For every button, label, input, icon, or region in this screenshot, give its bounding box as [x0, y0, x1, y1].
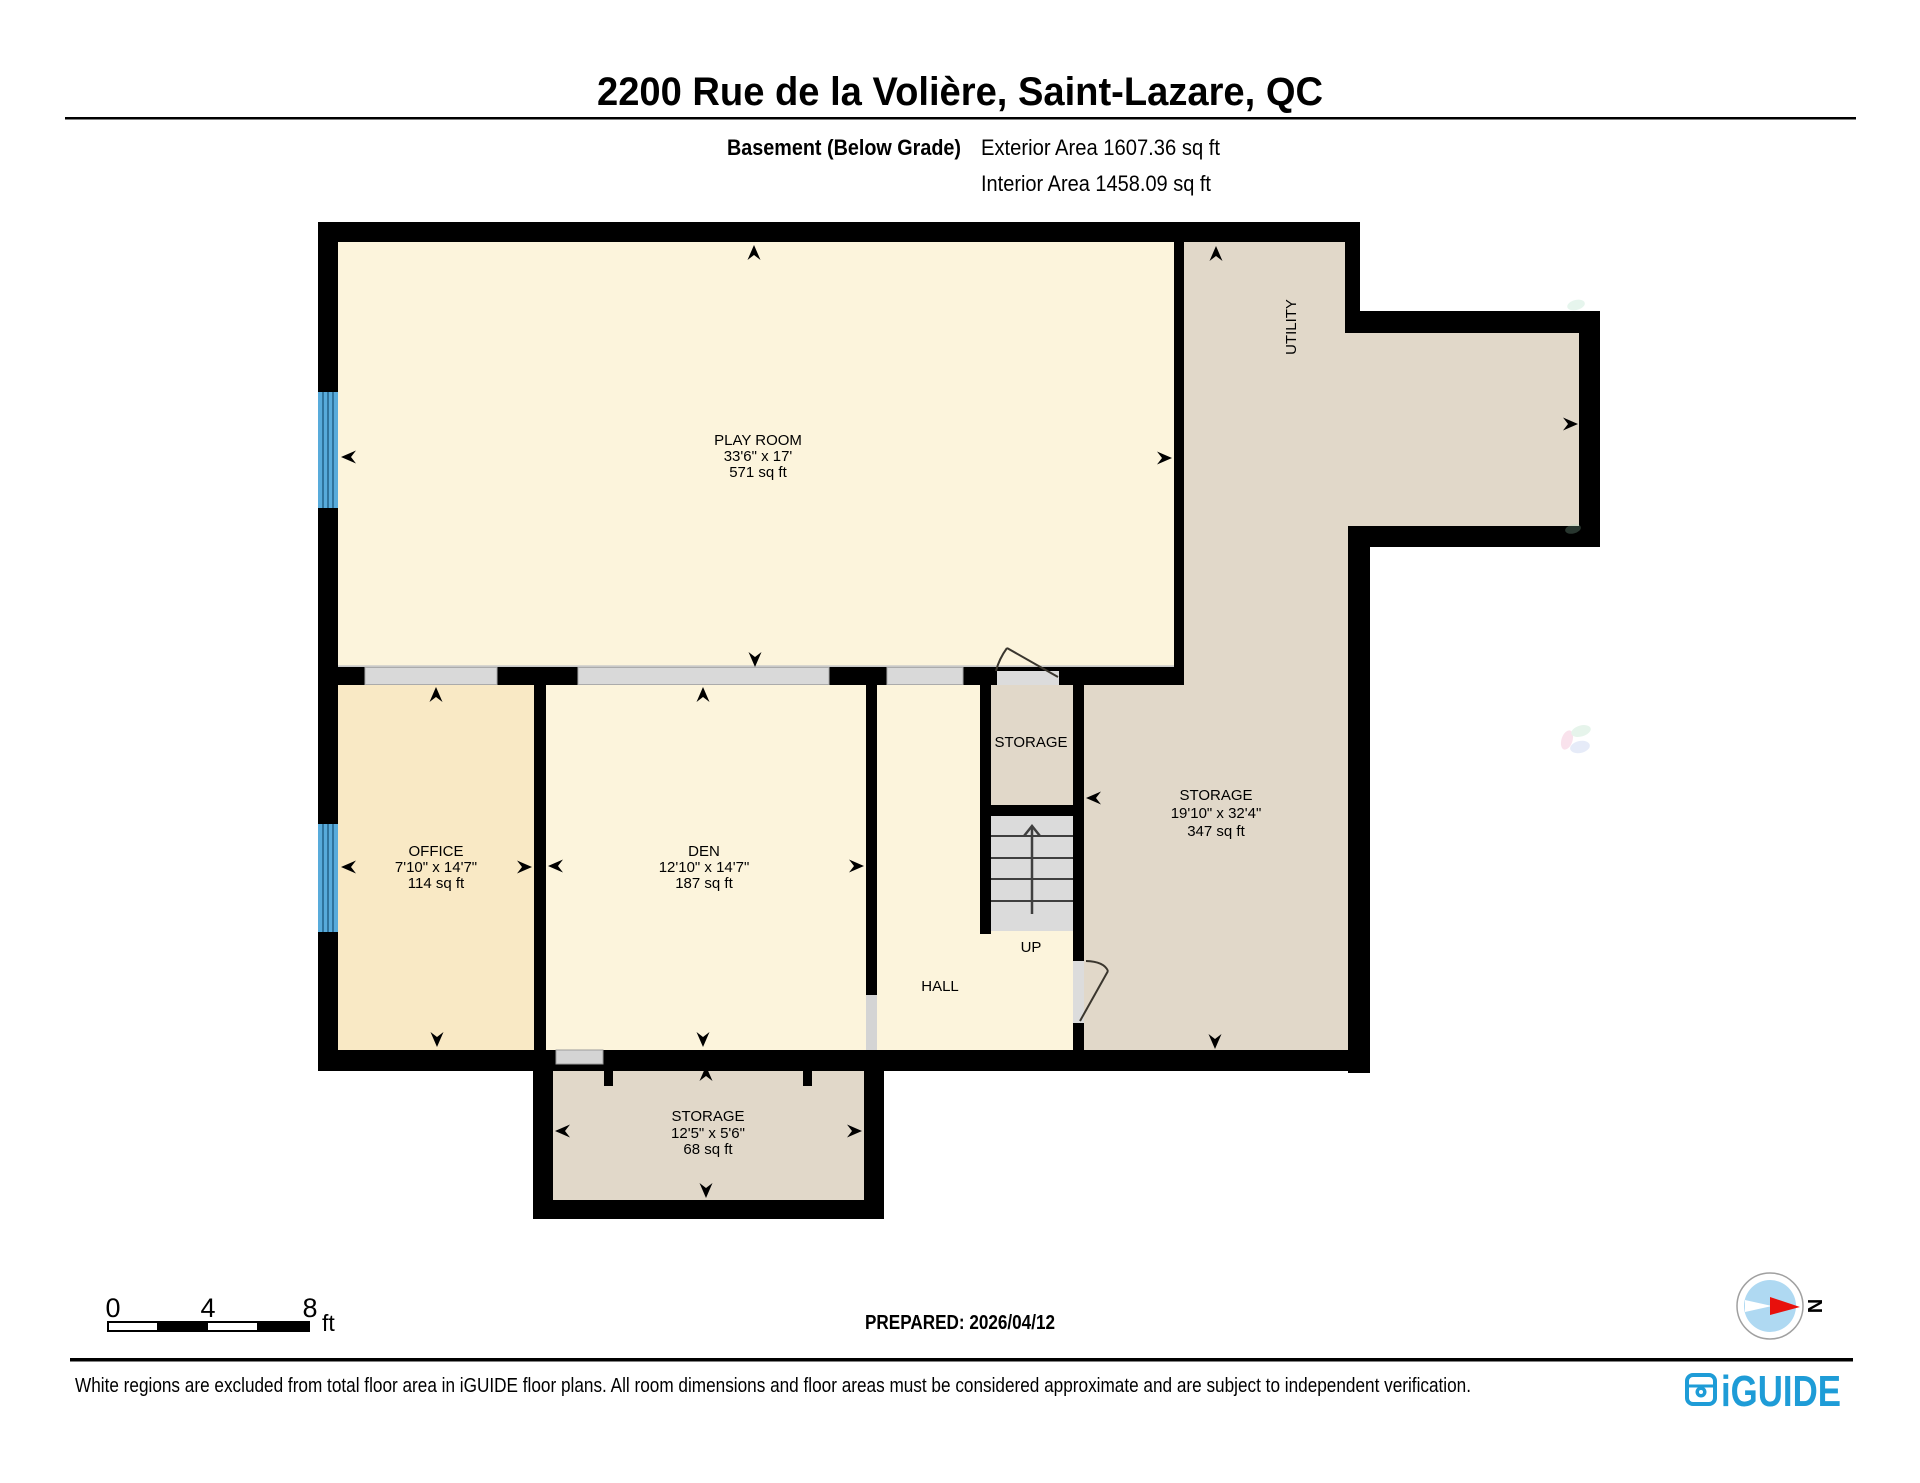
svg-text:UP: UP	[1021, 939, 1042, 956]
svg-text:114 sq ft: 114 sq ft	[408, 875, 465, 892]
svg-text:PREPARED: 2026/04/12: PREPARED: 2026/04/12	[865, 1312, 1055, 1334]
svg-text:STORAGE: STORAGE	[994, 734, 1067, 751]
svg-text:8: 8	[302, 1293, 317, 1323]
svg-text:PLAY ROOM: PLAY ROOM	[714, 432, 802, 449]
svg-text:4: 4	[200, 1293, 215, 1323]
svg-text:HALL: HALL	[921, 978, 959, 995]
svg-text:347 sq ft: 347 sq ft	[1187, 823, 1245, 840]
svg-text:iGUIDE: iGUIDE	[1721, 1367, 1841, 1416]
svg-text:12'10" x 14'7": 12'10" x 14'7"	[659, 859, 750, 876]
svg-text:7'10" x 14'7": 7'10" x 14'7"	[395, 859, 477, 876]
svg-text:UTILITY: UTILITY	[1283, 299, 1300, 355]
svg-text:2200 Rue de la Volière, Saint-: 2200 Rue de la Volière, Saint-Lazare, QC	[597, 70, 1323, 114]
svg-text:Basement (Below Grade): Basement (Below Grade)	[727, 135, 961, 160]
svg-text:Interior Area 1458.09 sq ft: Interior Area 1458.09 sq ft	[981, 171, 1211, 196]
svg-text:White regions are excluded fro: White regions are excluded from total fl…	[75, 1375, 1471, 1397]
svg-text:Exterior Area 1607.36 sq ft: Exterior Area 1607.36 sq ft	[981, 135, 1220, 160]
svg-text:STORAGE: STORAGE	[671, 1108, 744, 1125]
svg-text:12'5" x 5'6": 12'5" x 5'6"	[671, 1125, 745, 1142]
svg-text:19'10" x 32'4": 19'10" x 32'4"	[1171, 805, 1262, 822]
svg-text:STORAGE: STORAGE	[1179, 787, 1252, 804]
svg-text:DEN: DEN	[688, 843, 720, 860]
svg-text:68 sq ft: 68 sq ft	[683, 1141, 733, 1158]
svg-text:187 sq ft: 187 sq ft	[675, 875, 733, 892]
svg-text:N: N	[1803, 1299, 1825, 1313]
svg-text:571 sq ft: 571 sq ft	[729, 464, 787, 481]
svg-text:33'6" x 17': 33'6" x 17'	[724, 448, 793, 465]
svg-text:OFFICE: OFFICE	[409, 843, 464, 860]
svg-text:ft: ft	[322, 1310, 335, 1336]
svg-text:0: 0	[105, 1293, 120, 1323]
